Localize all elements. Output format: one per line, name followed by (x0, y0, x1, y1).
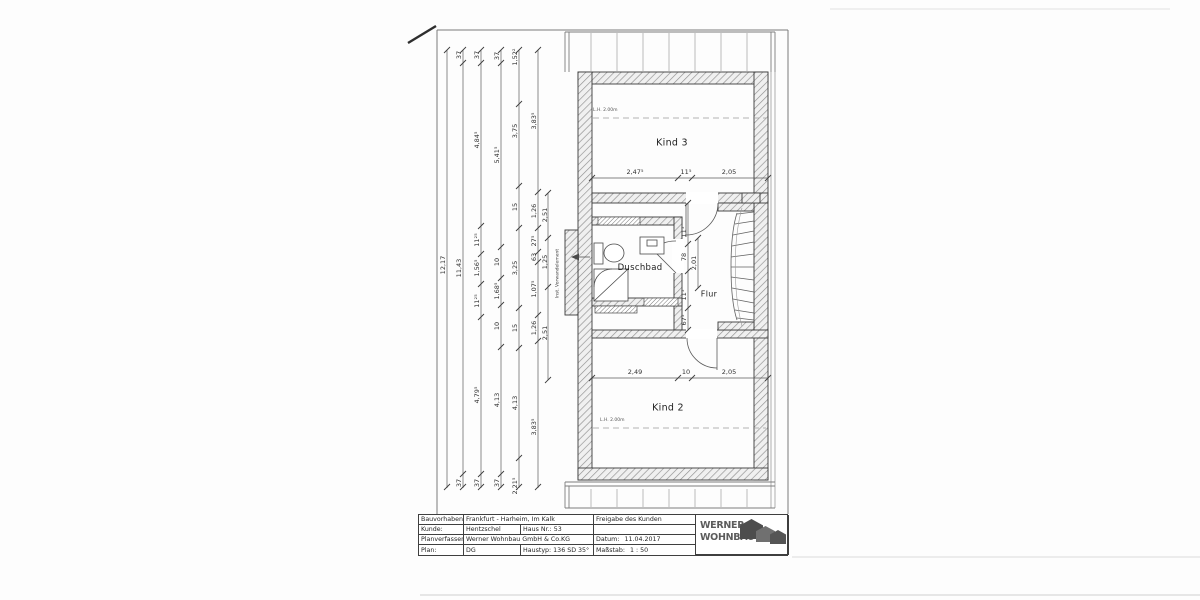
dim-label: 2,51 (541, 311, 549, 355)
scanned-floorplan-sheet: Kind 3 Duschbad Flur Kind 2 L.H. 2.00m L… (0, 0, 1200, 600)
dim-label: 2,21⁵ (511, 464, 519, 508)
title-block-bauvorhaben: Frankfurt - Harheim, Im Kalk (464, 515, 594, 525)
dim-label: 4,79⁵ (473, 373, 481, 417)
dim-label: 1,26 (530, 306, 538, 350)
title-block-haustyp: Haustyp: 136 SD 35° (521, 545, 594, 555)
company-logo: WERNER WOHNBAU (696, 515, 789, 555)
vorwand-element-label: Inst. Vorwandelement (556, 232, 561, 316)
shower-fixture (594, 269, 628, 301)
dim-label: 37 (493, 34, 501, 78)
roof-overhang-top (565, 32, 775, 72)
logo-text-werner: WERNER (700, 520, 744, 531)
massstab-value: 1 : 50 (630, 547, 648, 554)
dim-label: 37 (473, 461, 481, 505)
title-block: Bauvorhaben: Frankfurt - Harheim, Im Kal… (418, 514, 788, 556)
staircase (731, 208, 754, 326)
dim-label: 4,13 (511, 381, 519, 425)
dim-label: 15 (511, 185, 519, 229)
dim-label: 2,47⁵ (613, 168, 657, 176)
dim-label: 1,25 (541, 240, 549, 284)
dim-label: 1,52² (511, 35, 519, 79)
dim-label: 10 (664, 368, 708, 376)
title-block-datum: Datum: 11.04.2017 (594, 535, 696, 545)
washbasin-fixture (640, 237, 664, 254)
wc-fixture (594, 243, 624, 264)
dim-label: 10 (493, 304, 501, 348)
datum-label: Datum: (596, 536, 619, 543)
title-block-freigabe: Freigabe des Kunden (594, 515, 696, 525)
dim-label: 11⁵ (664, 168, 708, 176)
dim-label: 3,25 (511, 246, 519, 290)
roof-overhang-bottom (565, 482, 775, 508)
room-label-flur: Flur (701, 290, 717, 299)
dim-label: 11,43 (455, 246, 463, 290)
title-block-planverfasser: Werner Wohnbau GmbH & Co.KG (464, 535, 594, 545)
door-kind2 (687, 338, 717, 370)
dim-label: 2,05 (707, 368, 751, 376)
dim-label: 37 (455, 461, 463, 505)
massstab-label: Maßstab: (596, 547, 625, 554)
title-block-massstab: Maßstab: 1 : 50 (594, 545, 696, 555)
dim-label: 37 (455, 33, 463, 77)
dim-label: 1,07⁵ (530, 267, 538, 311)
clear-height-label-kind3: L.H. 2.00m (593, 108, 618, 113)
title-block-plan: DG (464, 545, 521, 555)
dim-label: 2,49 (613, 368, 657, 376)
dim-label: 15 (511, 306, 519, 350)
title-block-label: Kunde: (419, 525, 464, 535)
title-block-haus-nr: Haus Nr.: 53 (521, 525, 594, 535)
room-label-kind2: Kind 2 (652, 403, 684, 414)
roof-edge-right (771, 72, 775, 508)
dim-label: 37 (493, 461, 501, 505)
scan-artifact (420, 594, 1200, 596)
dim-label: 4,84⁵ (473, 118, 481, 162)
clear-height-label-kind2: L.H. 2.00m (600, 418, 625, 423)
title-block-label: Plan: (419, 545, 464, 555)
dim-label: 3,83⁵ (530, 99, 538, 143)
title-block-kunde: Hentzschel (464, 525, 521, 535)
room-label-duschbad: Duschbad (618, 263, 663, 273)
dim-label: 3,83⁵ (530, 405, 538, 449)
door-kind3 (686, 203, 718, 237)
dim-label: 5,41⁵ (493, 133, 501, 177)
dim-label: 3,75 (511, 109, 519, 153)
dim-label: 11²⁵ (473, 279, 481, 323)
sheet-fold-mark (408, 26, 436, 43)
title-block-label: Bauvorhaben: (419, 515, 464, 525)
dim-label: 2,05 (707, 168, 751, 176)
dim-label: 37 (473, 33, 481, 77)
title-block-empty (594, 525, 696, 535)
title-block-label: Planverfasser: (419, 535, 464, 545)
dim-label: 4,13 (493, 378, 501, 422)
dim-label: 2,01 (690, 241, 698, 285)
dim-label: 2,51 (541, 193, 549, 237)
dim-label: 67⁵ (680, 298, 688, 342)
scan-artifact (792, 556, 1200, 558)
dim-label: 12,17 (439, 243, 447, 287)
datum-value: 11.04.2017 (624, 536, 660, 543)
scan-artifact (830, 8, 1170, 10)
room-label-kind3: Kind 3 (656, 138, 688, 149)
floorplan-drawing (0, 0, 1200, 600)
